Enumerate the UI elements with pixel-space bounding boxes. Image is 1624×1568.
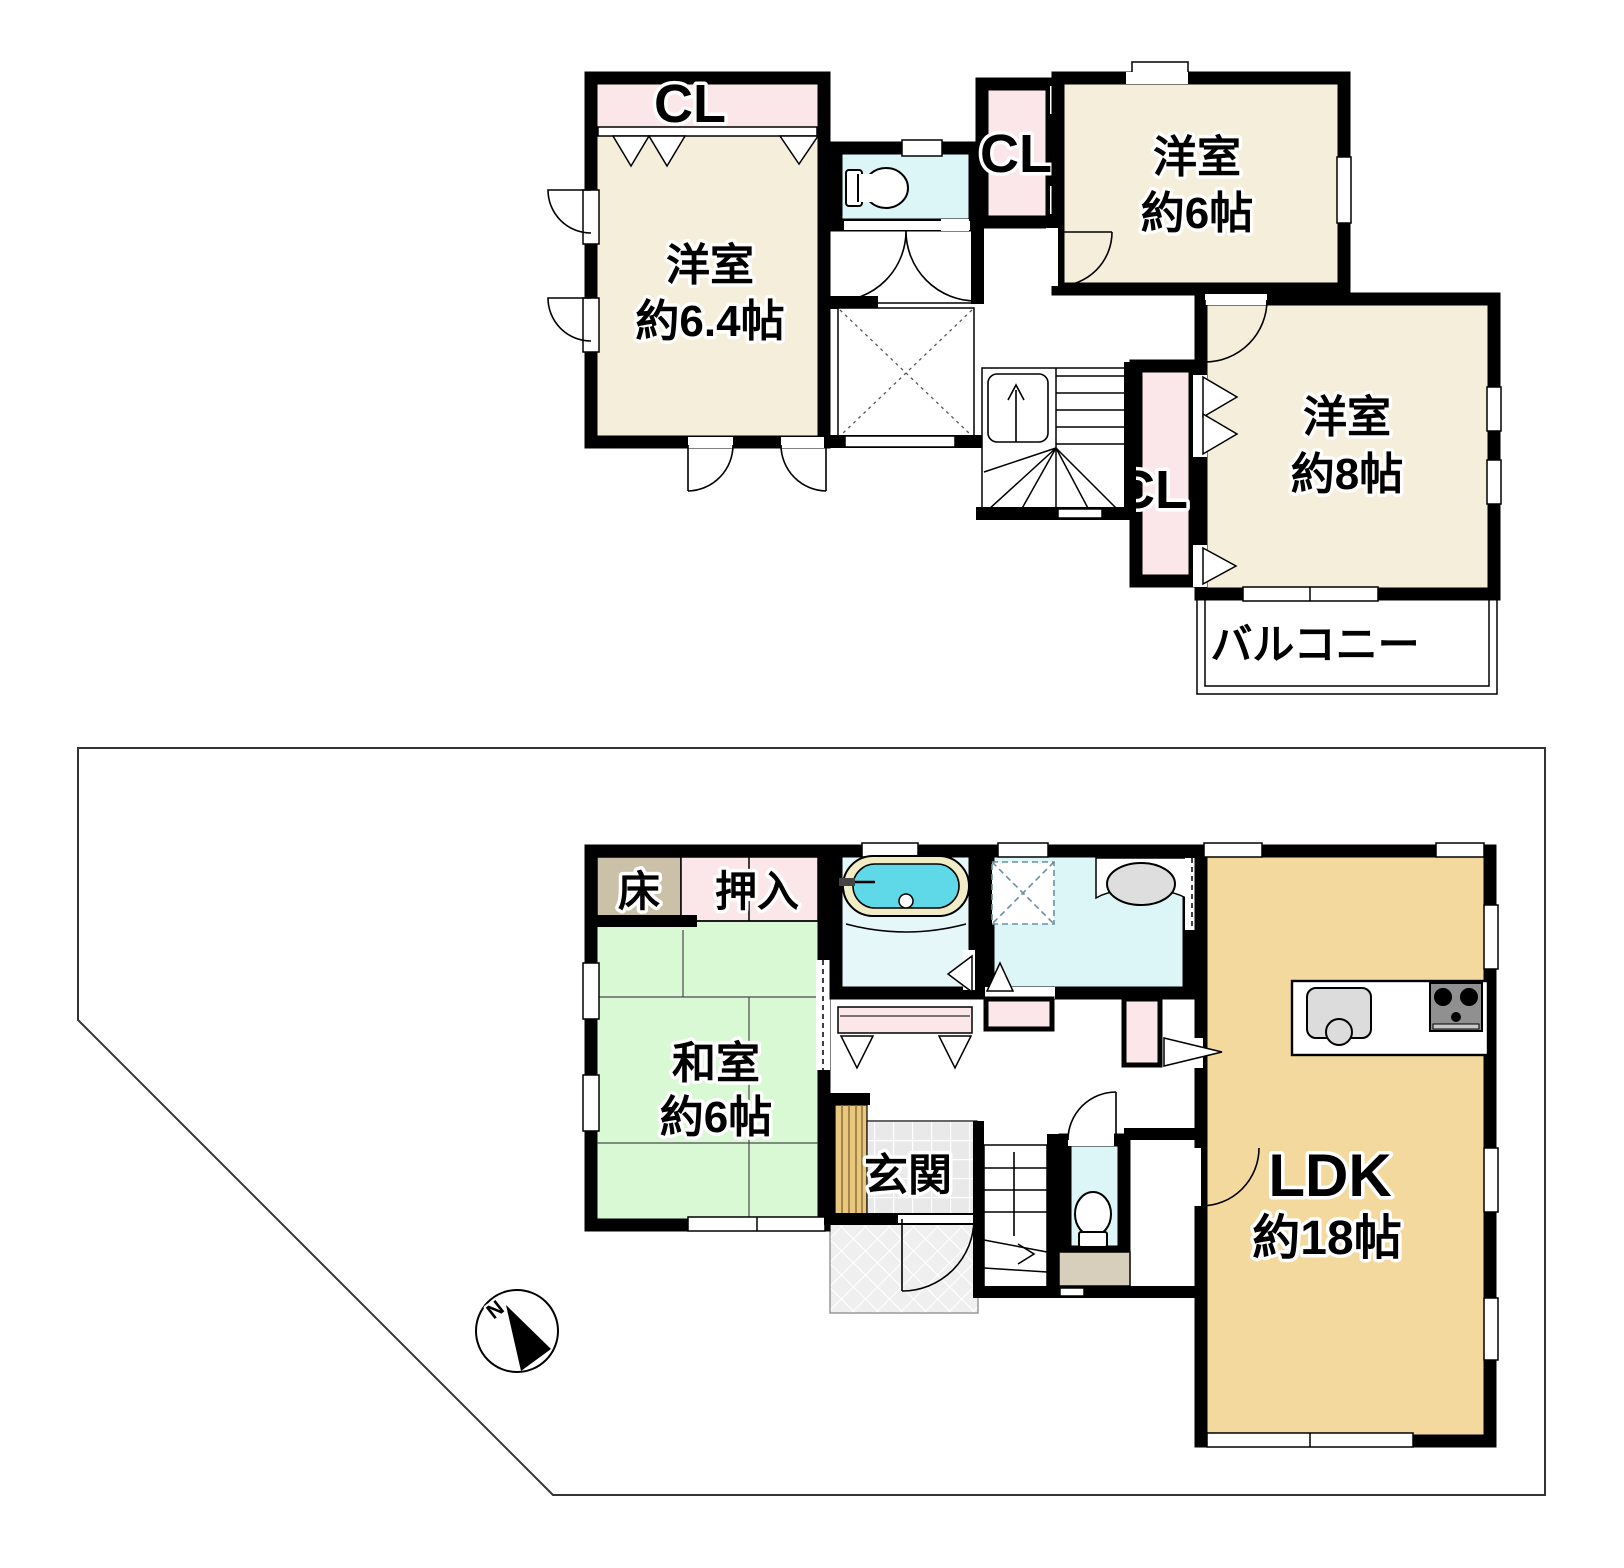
balcony: バルコニー [1197, 598, 1497, 694]
western-room-6-4: CL 洋室 約6.4帖 [548, 74, 826, 491]
stairs-icon [976, 362, 1136, 520]
room-label: LDK [1268, 1142, 1391, 1209]
room-label: 洋室 [1153, 132, 1241, 182]
window [583, 963, 599, 1019]
closet-label: CL [654, 74, 726, 134]
closet-door-icon [939, 1036, 971, 1068]
window [1484, 1298, 1498, 1360]
room-label: 洋室 [1303, 392, 1391, 442]
entrance-label: 玄関 [864, 1151, 952, 1200]
bathtub-icon [839, 856, 969, 916]
door-swing [781, 445, 826, 491]
entrance-porch [830, 1213, 978, 1313]
kitchen-sink-icon [1307, 988, 1371, 1045]
double-door-swing [836, 231, 976, 301]
window [1487, 387, 1501, 431]
window [1436, 843, 1484, 857]
window [583, 1075, 599, 1131]
door-swing [688, 445, 733, 491]
window [1337, 157, 1351, 223]
bathroom [836, 843, 975, 993]
window [1484, 905, 1498, 969]
room-label: 和室 [672, 1038, 760, 1088]
room-size-label: 約8帖 [1291, 450, 1403, 499]
floor-plan-drawing: バルコニー CL 洋室 約6.4帖 [0, 0, 1624, 1568]
window [862, 843, 918, 857]
room-size-label: 約6帖 [660, 1093, 772, 1142]
toilet-icon [1075, 1192, 1111, 1247]
first-floor-plan: N 床 押入 和室 約6帖 [78, 748, 1545, 1495]
closet-label: CL [980, 124, 1052, 184]
void-area [838, 308, 974, 438]
window [1487, 460, 1501, 504]
washroom [985, 843, 1199, 999]
stove-icon [1430, 983, 1482, 1031]
window [583, 298, 599, 352]
toilet-icon [846, 168, 908, 208]
western-room-8: 洋室 約8帖 [1201, 294, 1501, 601]
window [902, 140, 942, 156]
window [998, 843, 1048, 857]
room-size-label: 約18帖 [1252, 1212, 1401, 1265]
room-label: 洋室 [666, 240, 754, 290]
closet-door-icon [841, 1036, 873, 1068]
second-floor-plan: バルコニー CL 洋室 約6.4帖 [548, 62, 1501, 694]
hall-closets [838, 999, 1222, 1068]
ldk-room: LDK 約18帖 [1187, 843, 1498, 1447]
oshiire-label: 押入 [715, 868, 799, 915]
toilet-vanity [1059, 1252, 1130, 1286]
washing-machine-icon [992, 862, 1054, 924]
window [1204, 843, 1262, 857]
room-size-label: 約6.4帖 [635, 297, 784, 346]
japanese-room: 床 押入 和室 約6帖 [583, 851, 830, 1231]
floor-plan-page: バルコニー CL 洋室 約6.4帖 [0, 0, 1624, 1568]
western-room-6: 洋室 約6帖 [1046, 62, 1351, 289]
compass-icon: N [476, 1290, 558, 1372]
balcony-label: バルコニー [1210, 621, 1419, 668]
toilet-room-1f [1059, 1092, 1195, 1286]
window [583, 190, 599, 244]
kitchen-counter [1292, 981, 1488, 1055]
room-size-label: 約6帖 [1141, 189, 1253, 238]
window [1484, 1148, 1498, 1212]
toilet-room-2f [836, 140, 975, 231]
tokonoma-label: 床 [618, 868, 660, 915]
